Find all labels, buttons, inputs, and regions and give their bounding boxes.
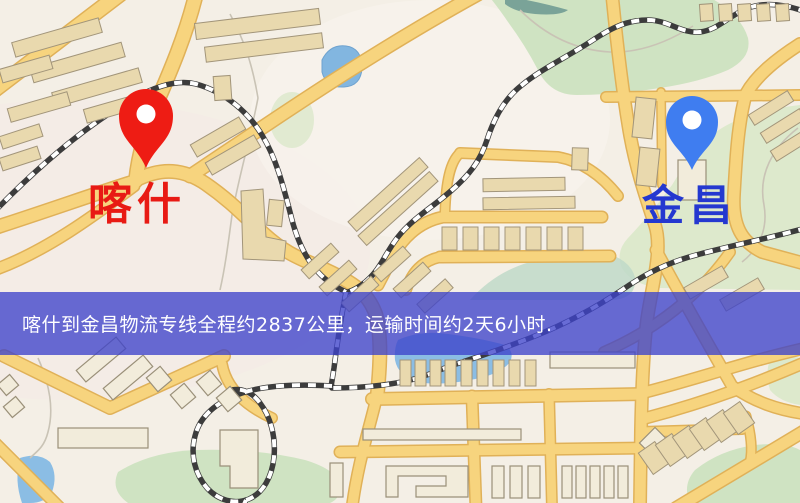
pin-hole [137, 105, 156, 124]
pin-hole [683, 111, 702, 130]
origin-label: 喀什 [88, 168, 186, 232]
map-canvas[interactable] [0, 0, 800, 503]
destination-label: 金昌 [642, 172, 738, 233]
info-banner-text: 喀什到金昌物流专线全程约2837公里，运输时间约2天6小时. [0, 310, 553, 337]
info-banner: 喀什到金昌物流专线全程约2837公里，运输时间约2天6小时. [0, 292, 800, 355]
map-screenshot: 喀什 金昌 喀什到金昌物流专线全程约2837公里，运输时间约2天6小时. [0, 0, 800, 503]
